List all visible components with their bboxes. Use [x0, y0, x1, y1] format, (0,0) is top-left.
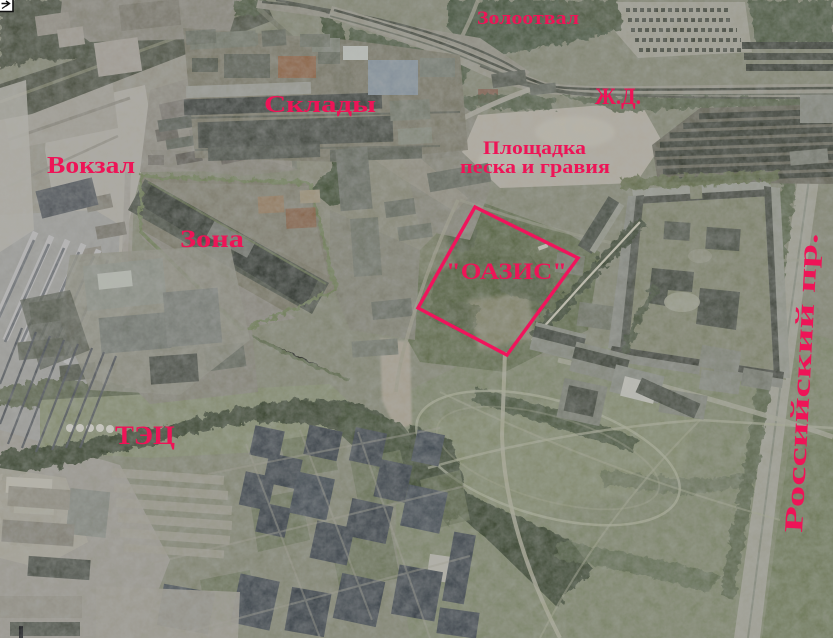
- svg-text:Склады: Склады: [264, 92, 376, 118]
- svg-text:Золоотвал: Золоотвал: [477, 8, 579, 29]
- svg-text:"ОАЗИС": "ОАЗИС": [446, 259, 567, 284]
- svg-text:Зона: Зона: [180, 226, 245, 253]
- svg-text:Ж.Д.: Ж.Д.: [595, 84, 641, 109]
- svg-text:Площадка: Площадка: [483, 138, 587, 159]
- svg-text:Вокзал: Вокзал: [47, 153, 135, 179]
- svg-text:песка и гравия: песка и гравия: [460, 157, 610, 178]
- svg-text:ТЭЦ: ТЭЦ: [115, 421, 175, 450]
